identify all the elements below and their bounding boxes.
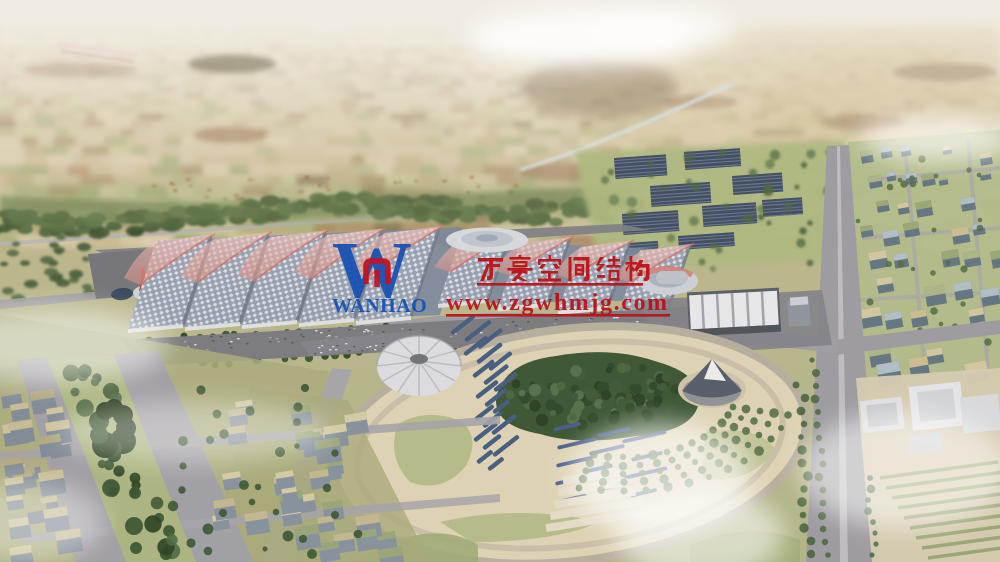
svg-text:www.zgwhmjg.com: www.zgwhmjg.com xyxy=(446,290,669,316)
svg-text:WANHAO: WANHAO xyxy=(332,295,427,317)
